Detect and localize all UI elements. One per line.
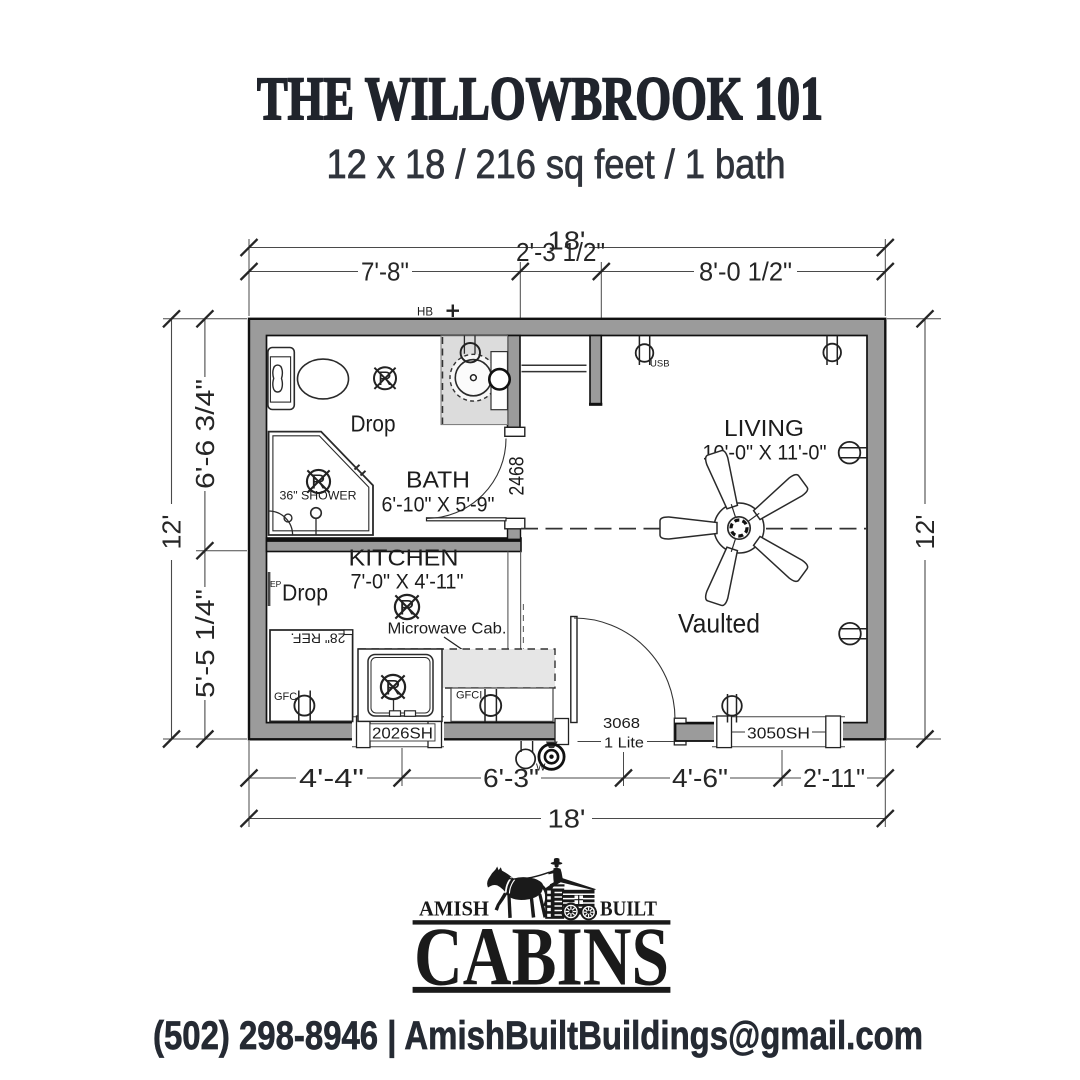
svg-text:KITCHEN: KITCHEN xyxy=(349,545,459,571)
svg-text:Drop: Drop xyxy=(351,411,396,437)
svg-text:GFCI: GFCI xyxy=(456,690,482,702)
svg-text:W: W xyxy=(536,763,546,774)
svg-text:4'-6": 4'-6" xyxy=(672,763,728,793)
svg-text:USB: USB xyxy=(650,359,670,370)
svg-text:5'-5 1/4": 5'-5 1/4" xyxy=(190,589,220,698)
svg-text:BATH: BATH xyxy=(406,467,470,493)
svg-text:12 x 18 / 216 sq feet / 1 bath: 12 x 18 / 216 sq feet / 1 bath xyxy=(327,141,786,187)
svg-text:3050SH: 3050SH xyxy=(747,726,810,743)
svg-text:12': 12' xyxy=(910,515,940,550)
svg-text:2026SH: 2026SH xyxy=(372,726,433,743)
svg-text:Microwave Cab.: Microwave Cab. xyxy=(388,621,507,638)
svg-text:2'-11": 2'-11" xyxy=(803,763,865,793)
svg-text:Vaulted: Vaulted xyxy=(678,609,760,639)
svg-text:HB: HB xyxy=(417,307,433,319)
svg-text:2'-3 1/2": 2'-3 1/2" xyxy=(516,237,605,267)
svg-text:8'-0 1/2": 8'-0 1/2" xyxy=(699,257,792,287)
svg-text:18': 18' xyxy=(548,804,586,834)
svg-text:12': 12' xyxy=(157,515,187,550)
svg-text:7'-8": 7'-8" xyxy=(361,257,409,287)
svg-text:28" REF.: 28" REF. xyxy=(291,631,346,647)
svg-text:36" SHOWER: 36" SHOWER xyxy=(280,489,357,503)
svg-text:Drop: Drop xyxy=(282,580,328,606)
svg-text:3068: 3068 xyxy=(603,715,640,732)
svg-text:6'-10" X 5'-9": 6'-10" X 5'-9" xyxy=(382,494,495,517)
svg-text:EP: EP xyxy=(270,579,282,589)
svg-text:2468: 2468 xyxy=(506,457,529,496)
svg-text:THE WILLOWBROOK 101: THE WILLOWBROOK 101 xyxy=(257,66,823,133)
svg-text:4'-4": 4'-4" xyxy=(299,763,364,793)
svg-text:6'-6 3/4": 6'-6 3/4" xyxy=(190,379,220,489)
svg-text:(502) 298-8946 | AmishBuiltBui: (502) 298-8946 | AmishBuiltBuildings@gma… xyxy=(153,1014,923,1058)
svg-text:7'-0" X 4'-11": 7'-0" X 4'-11" xyxy=(351,571,464,594)
svg-text:LIVING: LIVING xyxy=(724,415,804,441)
svg-text:1 Lite: 1 Lite xyxy=(604,735,644,752)
